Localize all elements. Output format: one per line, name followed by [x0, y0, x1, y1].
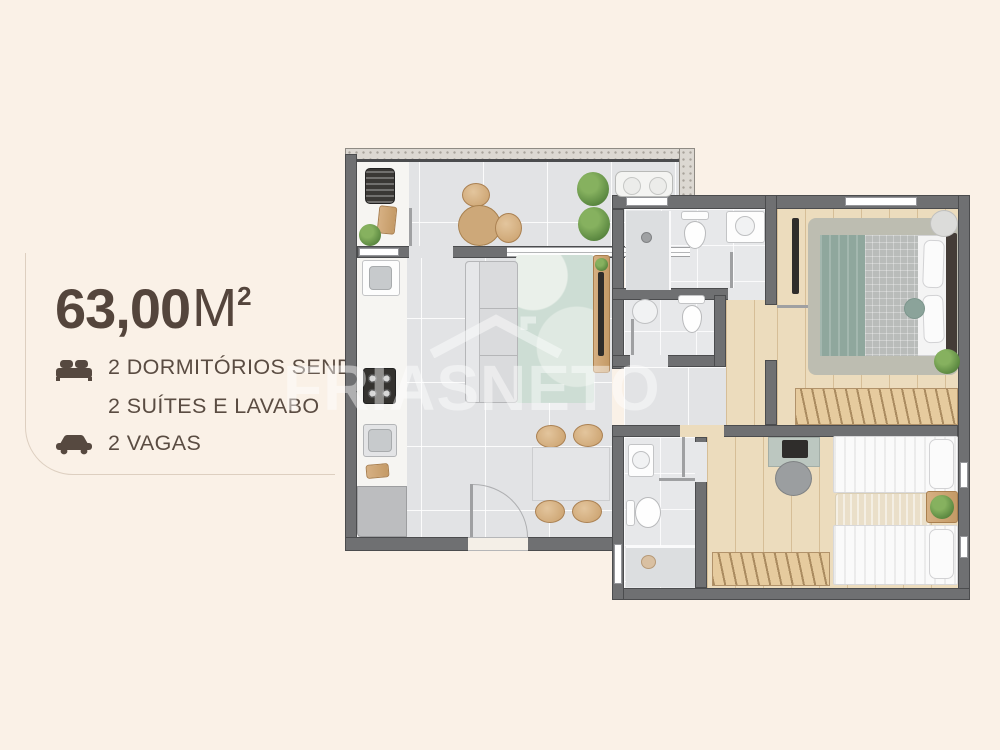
lavabo-door-opening [630, 355, 668, 367]
bathroom1-door-leaf [730, 252, 733, 288]
suite2-window-1 [960, 462, 968, 488]
suite1-plant [934, 349, 960, 374]
wall-top-concrete [345, 148, 693, 162]
suite1-bed-throw [820, 235, 865, 356]
barbecue-grill [365, 168, 395, 204]
area-superscript: 2 [237, 283, 251, 309]
shower-area-1 [626, 211, 671, 290]
wall-suite1-left [765, 195, 777, 305]
suite2-pillow-1 [929, 439, 954, 489]
wall-lavabo-right [714, 295, 726, 367]
circulation-floor [624, 367, 727, 427]
living-rug [516, 255, 594, 403]
desk-chair [775, 461, 812, 496]
suite1-tv-panel [792, 218, 799, 294]
suite2-door-leaf [682, 437, 685, 477]
gourmet-plant [359, 224, 381, 246]
floor-plan [345, 148, 970, 600]
laptop [782, 440, 808, 458]
ac-condenser [615, 171, 673, 197]
cooktop-stove [363, 368, 396, 404]
wall-left [345, 154, 357, 544]
wall-suite1-left-stub [765, 360, 777, 425]
kitchen-cutting-board [365, 463, 389, 479]
area-title: 63,00M2 [55, 281, 252, 337]
toilet-3-tank [626, 500, 635, 526]
lavabo-sink [632, 299, 658, 324]
shower-area-2 [626, 546, 695, 587]
terrace-door-opening [409, 246, 453, 258]
shower-head-2 [641, 555, 656, 569]
bathroom2-door-leaf [659, 478, 695, 481]
dining-table [532, 447, 610, 501]
bathroom2-basin [632, 451, 650, 469]
feature-bedrooms: 2 DORMITÓRIOS SENDO [55, 352, 385, 387]
suite1-window [845, 197, 917, 206]
lavabo-toilet-tank [678, 295, 705, 304]
suite1-pillow [922, 295, 945, 344]
kitchen-corner-cabinet [357, 486, 407, 537]
console-plant [595, 258, 608, 271]
bathroom2-door-opening [695, 442, 707, 482]
car-icon [55, 428, 95, 461]
feature-bedrooms-label: 2 DORMITÓRIOS SENDO [108, 352, 370, 383]
kitchen-sink-basin [369, 266, 392, 290]
terrace-plant-2 [578, 207, 610, 241]
lavabo-door-leaf [631, 319, 634, 355]
nightstand-plant [930, 495, 954, 519]
terrace-chair [462, 183, 490, 207]
wall-corner-concrete [679, 148, 695, 200]
suite1-pillow [922, 240, 945, 289]
dining-chair [535, 500, 565, 523]
bathroom1-window [626, 197, 668, 206]
toilet-3-bowl [635, 497, 661, 528]
shower-head-1 [641, 232, 652, 243]
bathroom2-window [614, 544, 622, 584]
suite1-headboard [946, 233, 957, 358]
area-unit: M [192, 281, 237, 335]
terrace-plant-1 [577, 172, 609, 206]
suite1-bed-blanket [865, 235, 918, 356]
suite2-window-2 [960, 536, 968, 558]
suite2-wardrobe [712, 552, 830, 586]
suite2-door-opening [680, 425, 724, 437]
gourmet-window [359, 248, 399, 256]
area-value: 63,00 [55, 281, 190, 337]
terrace-chair [495, 213, 522, 243]
suite2-pillow-2 [929, 529, 954, 579]
vanity-1-basin [735, 216, 755, 236]
feature-parking-label: 2 VAGAS [108, 428, 201, 459]
bathroom1-door-opening [728, 288, 768, 300]
terrace-door-leaf [409, 208, 412, 246]
suite1-round-pillow [904, 298, 925, 319]
toilet-1-tank [681, 211, 709, 220]
dining-chair [536, 425, 566, 448]
feature-list: 2 DORMITÓRIOS SENDO 2 SUÍTES E LAVABO 2 … [55, 352, 385, 465]
feature-suites-label: 2 SUÍTES E LAVABO [108, 391, 385, 422]
dining-chair [572, 500, 602, 523]
entry-door-opening [468, 537, 528, 551]
kitchen-sink-2-basin [368, 429, 392, 452]
dining-chair [573, 424, 603, 447]
wall-bottom-right [612, 588, 970, 600]
sofa [465, 261, 518, 403]
suite1-wardrobe [795, 388, 958, 425]
sofa-backrest [466, 262, 480, 402]
tv-screen [598, 272, 604, 356]
feature-parking: 2 VAGAS [55, 428, 385, 461]
suite1-pouf [930, 210, 958, 237]
bed-icon [55, 352, 95, 387]
